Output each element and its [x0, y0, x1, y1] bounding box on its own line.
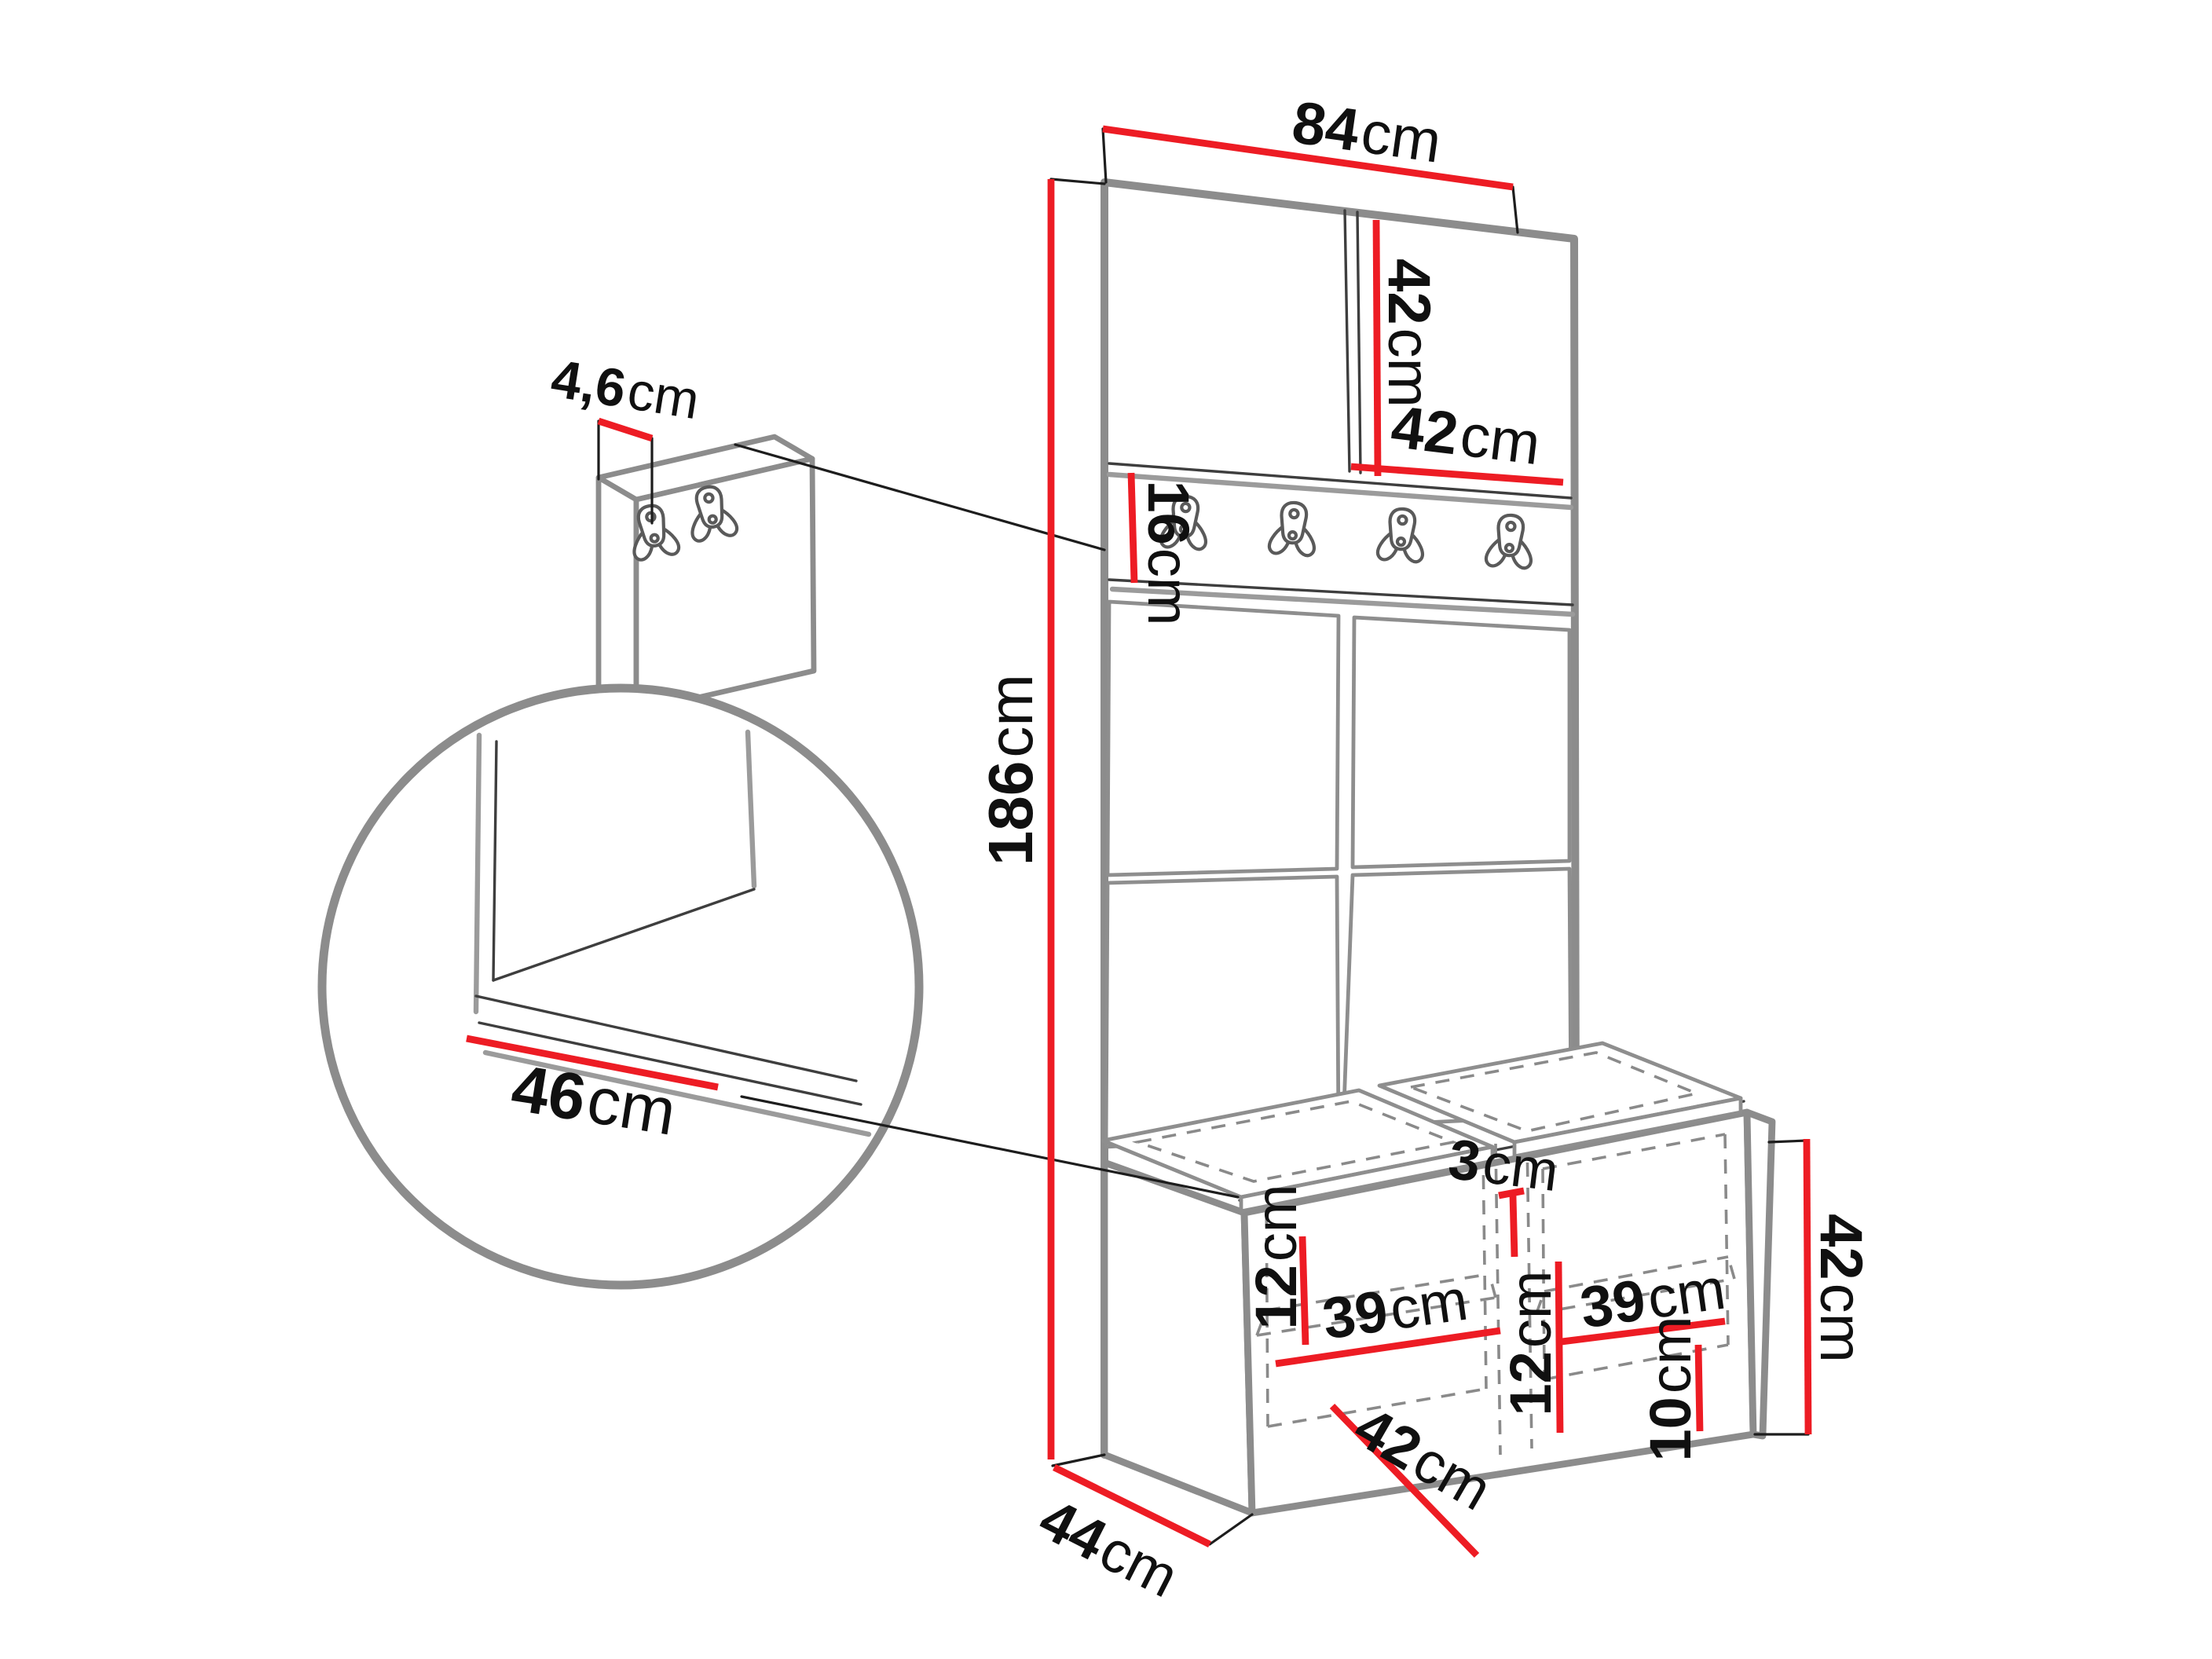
dim-wall-panel-thickness-label: 4,6cm — [548, 349, 704, 431]
dim-hook-rail-height-label: 16cm — [1137, 481, 1202, 626]
dim-value: 42 — [1808, 1214, 1875, 1280]
dim-top-width-tick-left — [1103, 129, 1106, 182]
dim-unit: cm — [1808, 1284, 1875, 1363]
bench-right-side — [1747, 1112, 1772, 1436]
detail-panel-edge — [476, 735, 479, 1012]
dim-total-height-label: 186cm — [976, 674, 1046, 866]
dim-value: 46 — [507, 1050, 591, 1134]
dim-right-upper-height: 12cm — [1498, 1262, 1563, 1433]
dim-unit: cm — [1243, 1185, 1309, 1262]
dim-lower-section-height-label: 10cm — [1638, 1317, 1703, 1462]
dim-unit: cm — [1137, 548, 1202, 626]
dim-value: 39 — [1319, 1277, 1392, 1351]
dim-hook-rail-height-line — [1131, 473, 1134, 583]
detail-circle-ring — [322, 688, 919, 1285]
dim-cushion-gap-label: 3cm — [1445, 1128, 1562, 1203]
dim-bench-height-label: 42cm — [1808, 1214, 1875, 1363]
bench-left-side — [1104, 1163, 1252, 1513]
dimension-diagram: 84cm 42cm 42cm 16cm 186cm 4,6cm — [0, 0, 2212, 1659]
dim-value: 10 — [1638, 1397, 1703, 1461]
dim-bench-height-tick-top — [1769, 1141, 1807, 1142]
dim-unit: cm — [1498, 1271, 1563, 1349]
dim-value: 16 — [1137, 481, 1202, 545]
dim-unit: cm — [1357, 98, 1445, 175]
dim-value: 186 — [976, 761, 1046, 866]
dim-total-height-tick-top — [1051, 179, 1104, 184]
panel-top-left — [1108, 602, 1339, 875]
dim-value: 42 — [1388, 393, 1462, 467]
dim-unit: cm — [1386, 1266, 1471, 1342]
dim-unit: cm — [976, 674, 1046, 758]
dim-lower-section-height: 10cm — [1638, 1317, 1703, 1462]
seat-detail-circle — [322, 688, 919, 1285]
dim-bench-depth-tick — [1210, 1514, 1252, 1544]
dim-total-height: 186cm — [976, 179, 1105, 1466]
dim-value: 4,6 — [548, 349, 630, 419]
dim-right-upper-height-label: 12cm — [1498, 1271, 1563, 1416]
dim-unit: cm — [1638, 1317, 1703, 1394]
dim-left-upper-height: 12cm — [1243, 1185, 1309, 1345]
dim-value: 42 — [1376, 258, 1443, 325]
dim-top-width-tick-right — [1513, 187, 1518, 233]
panel-top-right — [1353, 617, 1569, 867]
dim-wall-panel-thickness-line — [599, 421, 652, 438]
dim-unit: cm — [624, 361, 703, 430]
dim-cushion-gap-line — [1513, 1196, 1514, 1257]
wall-panel-left-side — [599, 478, 636, 712]
dim-unit: cm — [1479, 1132, 1562, 1203]
dim-value: 12 — [1243, 1265, 1309, 1329]
dim-hook-rail-height: 16cm — [1131, 473, 1202, 625]
dim-total-height-tick-bottom — [1053, 1455, 1104, 1466]
dim-unit: cm — [1456, 401, 1544, 478]
dim-left-upper-height-label: 12cm — [1243, 1185, 1309, 1330]
dim-value: 12 — [1498, 1351, 1563, 1415]
dim-value: 84 — [1288, 89, 1364, 164]
dim-cabinet-height-label: 42cm — [1376, 258, 1443, 408]
wall-hook-panel — [599, 437, 814, 712]
dim-bench-depth-label: 44cm — [1030, 1485, 1188, 1610]
dim-unit: cm — [582, 1062, 680, 1148]
wall-panel-front — [636, 459, 814, 712]
dim-top-width-label: 84cm — [1288, 89, 1445, 176]
